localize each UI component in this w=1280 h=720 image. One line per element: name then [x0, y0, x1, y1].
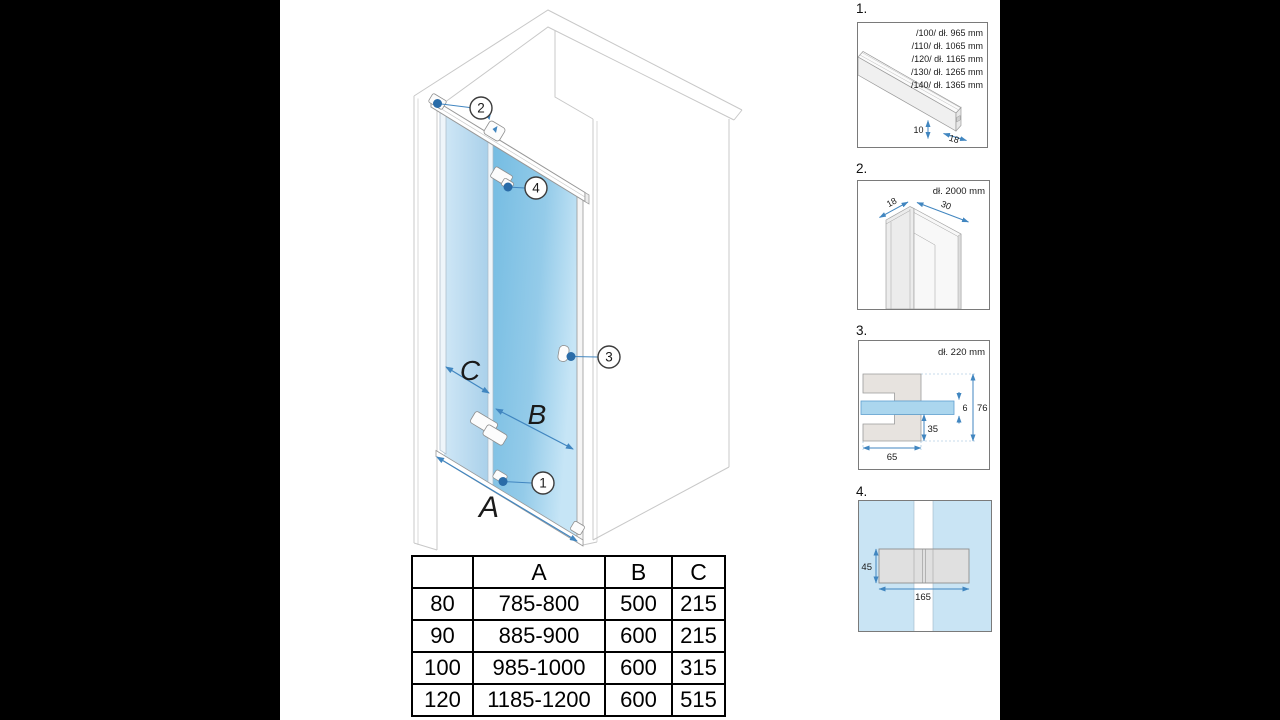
- table-row: 120 1185-1200 600 515: [412, 684, 725, 716]
- cell-b: 600: [605, 620, 672, 652]
- detail-2-box: dł. 2000 mm 18 30: [857, 180, 990, 310]
- clamp-lower-bracket: [863, 415, 921, 442]
- cell-a: 885-900: [473, 620, 605, 652]
- cell-c: 515: [672, 684, 725, 716]
- callout-3: 3: [605, 350, 613, 365]
- detail-4-box: 45 165: [858, 500, 992, 632]
- table-row: 80 785-800 500 215: [412, 588, 725, 620]
- cell-size: 100: [412, 652, 473, 684]
- detail-1-length-option: /100/ dł. 965 mm: [916, 28, 983, 38]
- detail-3-dim-lower: 35: [928, 424, 939, 435]
- table-row: 100 985-1000 600 315: [412, 652, 725, 684]
- detail-3-dim-glass: 6: [963, 403, 968, 413]
- main-isometric-diagram: C B A 2 4 3 1: [280, 0, 750, 555]
- table-header-row: A B C: [412, 556, 725, 588]
- detail-1-box: /100/ dł. 965 mm /110/ dł. 1065 mm /120/…: [857, 22, 988, 148]
- detail-3-box: dł. 220 mm 6 76 35 65: [858, 340, 990, 470]
- detail-3-dim-arm: 65: [887, 452, 898, 463]
- header-empty: [412, 556, 473, 588]
- detail-3-length: dł. 220 mm: [938, 347, 985, 358]
- cell-b: 600: [605, 684, 672, 716]
- glass-strip: [861, 401, 954, 415]
- detail-1-length-option: /140/ dł. 1365 mm: [911, 80, 983, 90]
- callout-1: 1: [539, 476, 547, 491]
- detail-3-label: 3.: [856, 323, 867, 338]
- cell-a: 1185-1200: [473, 684, 605, 716]
- callout-2: 2: [477, 101, 485, 116]
- detail-4-dim-height: 45: [861, 562, 872, 573]
- page: { "main_diagram": { "dim_labels": {"a": …: [0, 0, 1280, 720]
- clamp-upper-bracket: [863, 374, 921, 401]
- hinge-plate: [879, 549, 969, 583]
- detail-2-dim-depth: 18: [885, 196, 899, 210]
- detail-1-dim-width: 18: [948, 133, 961, 145]
- cell-c: 215: [672, 620, 725, 652]
- detail-4-drawing: 45 165: [859, 501, 991, 631]
- cell-a: 985-1000: [473, 652, 605, 684]
- door-edge-profile: [577, 196, 583, 544]
- detail-3-drawing: dł. 220 mm 6 76 35 65: [859, 341, 989, 469]
- header-B: B: [605, 556, 672, 588]
- dim-label-c: C: [460, 355, 481, 386]
- cell-a: 785-800: [473, 588, 605, 620]
- wall-profile-3d: [886, 207, 961, 310]
- cell-c: 215: [672, 588, 725, 620]
- detail-2-length: dł. 2000 mm: [933, 186, 985, 197]
- wall-mount-profile: [440, 111, 446, 454]
- dim-label-a: A: [477, 491, 499, 524]
- detail-3-dim-total: 76: [977, 403, 988, 414]
- header-C: C: [672, 556, 725, 588]
- cell-size: 120: [412, 684, 473, 716]
- detail-1-length-option: /110/ dł. 1065 mm: [912, 41, 983, 51]
- detail-4-dim-width: 165: [915, 592, 931, 603]
- detail-2-drawing: dł. 2000 mm 18 30: [858, 181, 989, 309]
- cell-b: 600: [605, 652, 672, 684]
- detail-1-dim-height: 10: [913, 125, 923, 135]
- header-A: A: [473, 556, 605, 588]
- detail-2-label: 2.: [856, 161, 867, 176]
- cell-size: 80: [412, 588, 473, 620]
- detail-4-label: 4.: [856, 484, 867, 499]
- cell-size: 90: [412, 620, 473, 652]
- callout-4: 4: [532, 181, 540, 196]
- detail-1-length-option: /120/ dł. 1165 mm: [912, 54, 983, 64]
- size-table: A B C 80 785-800 500 215 90 885-900 600 …: [411, 555, 726, 717]
- dim-label-b: B: [528, 399, 547, 430]
- cell-c: 315: [672, 652, 725, 684]
- detail-1-label: 1.: [856, 1, 867, 16]
- detail-1-length-option: /130/ dł. 1265 mm: [911, 67, 983, 77]
- detail-1-drawing: /100/ dł. 965 mm /110/ dł. 1065 mm /120/…: [858, 23, 987, 147]
- cell-b: 500: [605, 588, 672, 620]
- table-row: 90 885-900 600 215: [412, 620, 725, 652]
- content-area: C B A 2 4 3 1 A B: [280, 0, 1000, 720]
- detail-2-dim-width: 30: [940, 199, 953, 212]
